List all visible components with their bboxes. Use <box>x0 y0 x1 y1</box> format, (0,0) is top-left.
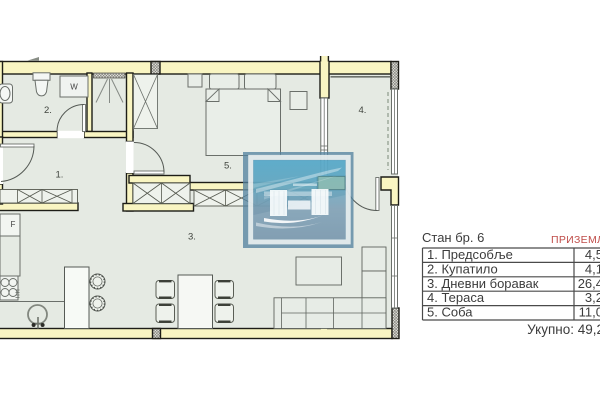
svg-text:2.: 2. <box>44 105 52 116</box>
svg-text:5.: 5. <box>224 161 232 172</box>
svg-text:3,2: 3,2 <box>585 290 600 305</box>
svg-text:3. Дневни боравак: 3. Дневни боравак <box>427 276 539 291</box>
svg-text:4,1: 4,1 <box>585 261 600 276</box>
svg-text:4. Тераса: 4. Тераса <box>427 290 485 305</box>
svg-text:3.: 3. <box>188 232 196 243</box>
svg-text:1. Предсобље: 1. Предсобље <box>427 247 513 262</box>
svg-text:2. Купатило: 2. Купатило <box>427 261 498 276</box>
svg-text:11,0: 11,0 <box>579 305 600 320</box>
svg-text:ПРИЗЕМЉЕ: ПРИЗЕМЉЕ <box>551 234 600 246</box>
svg-text:F: F <box>11 220 16 229</box>
svg-text:26,4: 26,4 <box>578 276 600 291</box>
svg-text:5. Соба: 5. Соба <box>427 305 473 320</box>
svg-text:Укупно: 49,2: Укупно: 49,2 <box>527 322 600 337</box>
svg-text:4.: 4. <box>359 105 367 116</box>
svg-text:Стан бр. 6: Стан бр. 6 <box>422 230 484 245</box>
svg-text:1.: 1. <box>56 170 64 181</box>
svg-text:4,5: 4,5 <box>585 247 600 262</box>
svg-text:W: W <box>70 83 78 92</box>
